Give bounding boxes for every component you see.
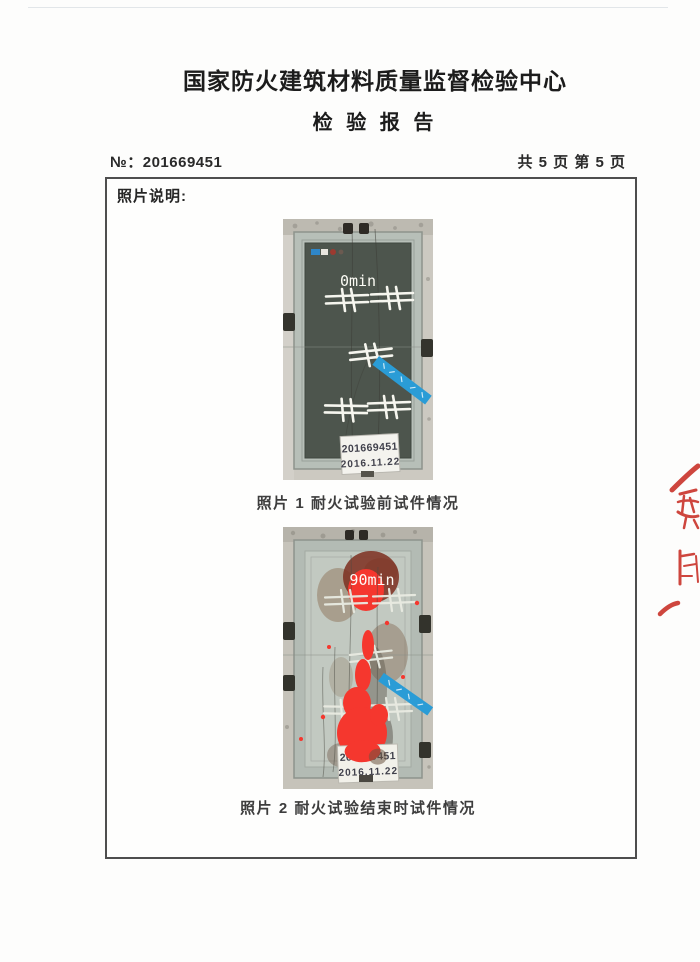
photo-1-caption: 照片 1 耐火试验前试件情况 (183, 492, 533, 513)
photo-description-box: 照片说明: (105, 177, 637, 859)
report-title: 检 验 报 告 (50, 106, 700, 135)
photo-after-test-image: 90min (283, 527, 433, 789)
photo-after-test: 90min (283, 527, 433, 789)
report-number: №：201669451 (110, 151, 222, 172)
report-number-label: №： (110, 154, 143, 171)
photo-2-caption: 照片 2 耐火试验结束时试件情况 (183, 797, 533, 818)
red-stamp-fragment (650, 456, 700, 621)
scan-edge-artifact (28, 7, 668, 8)
report-page: 国家防火建筑材料质量监督检验中心 检 验 报 告 №：201669451 共 5… (0, 0, 700, 962)
page-count: 共 5 页 第 5 页 (400, 151, 626, 172)
photo-section-heading: 照片说明: (117, 185, 187, 206)
time-label-90min: 90min (349, 571, 394, 589)
organization-title: 国家防火建筑材料质量监督检验中心 (50, 62, 700, 96)
specimen-label: 201669451 2016.11.22 (339, 433, 400, 474)
time-label-0min: 0min (340, 272, 376, 290)
photo-before-test-image: 0min (283, 219, 433, 480)
photo-before-test: 0min (283, 219, 433, 480)
report-number-value: 201669451 (143, 154, 223, 171)
